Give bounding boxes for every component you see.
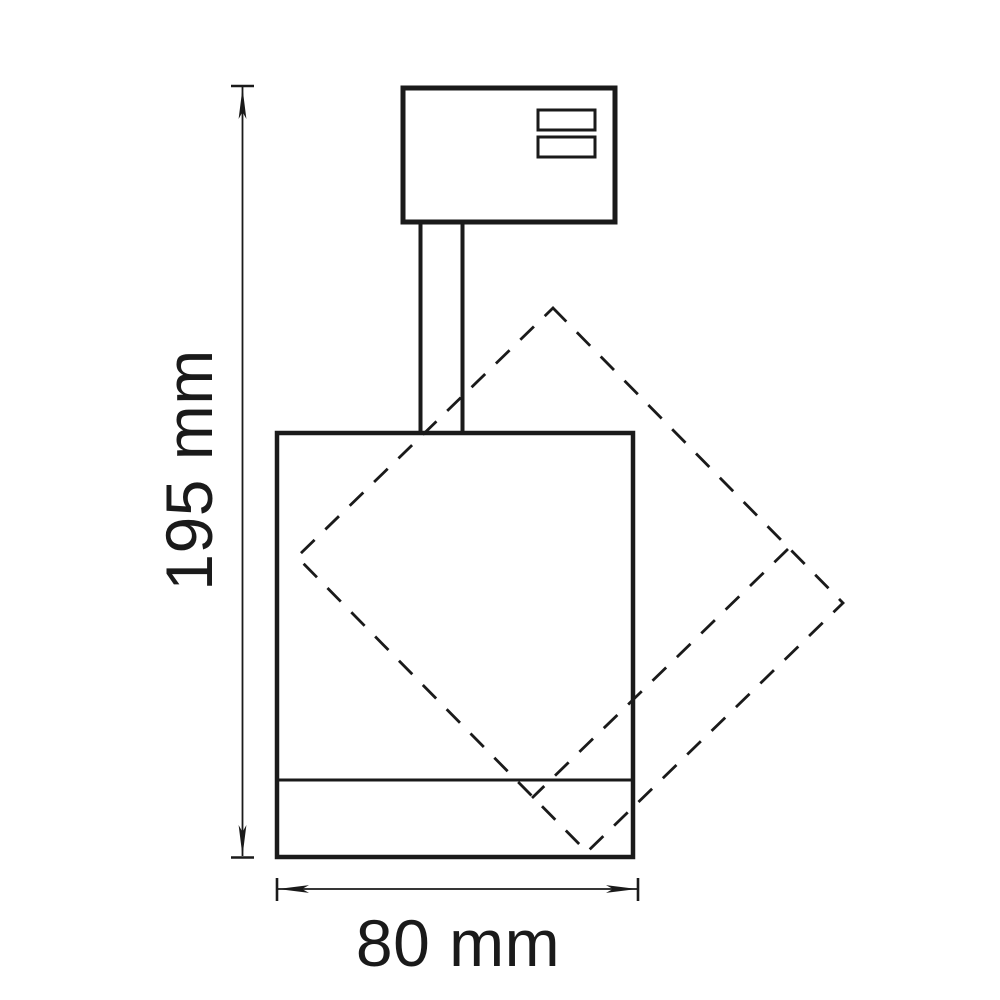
adapter-slot-top bbox=[538, 110, 595, 130]
adapter-slot-bottom bbox=[538, 137, 595, 157]
track-adapter bbox=[403, 88, 615, 222]
height-dimension-label: 195 mm bbox=[152, 349, 226, 590]
spotlight-dimension-drawing: 195 mm 80 mm bbox=[0, 0, 1000, 1000]
width-dimension: 80 mm bbox=[277, 878, 638, 980]
technical-drawing-canvas: 195 mm 80 mm bbox=[0, 0, 1000, 1000]
rotated-body-outline-dashed bbox=[297, 308, 843, 852]
lamp-body-outline bbox=[277, 433, 633, 857]
height-dimension: 195 mm bbox=[152, 86, 254, 858]
rotated-body-dashed bbox=[297, 308, 843, 852]
track-adapter-outline bbox=[403, 88, 615, 222]
lamp-body bbox=[277, 433, 633, 857]
rotated-body-interior-line-dashed bbox=[532, 549, 788, 798]
width-dimension-label: 80 mm bbox=[356, 906, 560, 980]
